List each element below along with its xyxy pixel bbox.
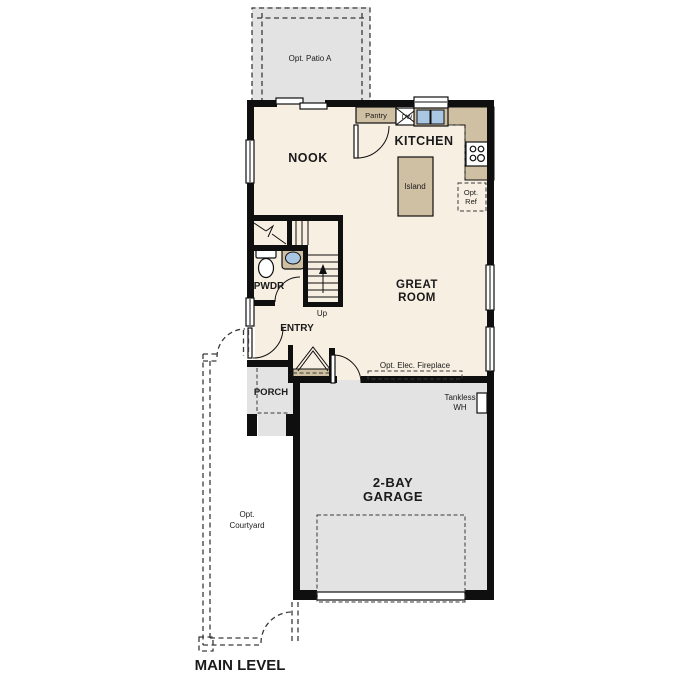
entry-label: ENTRY [280, 323, 314, 334]
sink-basin-left [417, 110, 430, 124]
courtyard-left-dashed [203, 354, 210, 645]
opt-ref-label-2: Ref [465, 197, 478, 206]
tankless-label-2: WH [453, 403, 467, 412]
courtyard-bottom-dashed [203, 638, 260, 645]
main-floor-area [250, 103, 490, 380]
floor-plan: Opt. Patio A NOOK KITCHEN Pantry DW Isla… [0, 0, 687, 687]
burner-icon [478, 155, 485, 162]
great-room-label-1: GREAT [396, 279, 438, 291]
wall-segment [303, 245, 308, 307]
courtyard-label-2: Courtyard [229, 521, 264, 530]
wall-segment [487, 100, 494, 265]
courtyard-post [199, 637, 213, 651]
toilet-bowl [259, 259, 274, 278]
opt-ref-label-1: Opt. [464, 188, 478, 197]
tankless-label-1: Tankless [444, 393, 475, 402]
wall-segment [247, 245, 308, 251]
courtyard-gate-swing-bottom [261, 612, 292, 643]
garage-label-1: 2-BAY [373, 475, 413, 490]
dw-label: DW [402, 114, 414, 121]
pwdr-sink-basin [286, 252, 301, 264]
courtyard-label-1: Opt. [239, 510, 254, 519]
floor-plan-svg: Opt. Patio A NOOK KITCHEN Pantry DW Isla… [0, 0, 687, 687]
burner-icon [470, 155, 476, 161]
wall-segment [487, 310, 494, 327]
range-stove [466, 142, 488, 166]
wall-segment [293, 383, 300, 600]
porch-step [258, 416, 290, 436]
overhead-garage-door [317, 592, 465, 600]
porch-label: PORCH [254, 387, 288, 398]
wall-segment [325, 100, 356, 107]
sliding-door-panel [300, 103, 327, 109]
main-level-title: MAIN LEVEL [195, 657, 286, 674]
wall-segment [293, 590, 317, 600]
wall-segment [247, 360, 293, 367]
kitchen-label: KITCHEN [394, 134, 453, 148]
pwdr-label: PWDR [254, 281, 285, 292]
fireplace-label: Opt. Elec. Fireplace [380, 361, 451, 370]
garage-door-leaf [331, 355, 335, 383]
tankless-water-heater [477, 393, 487, 413]
wall-segment [247, 215, 343, 221]
pantry-door-leaf [354, 125, 358, 158]
garage-label-2: GARAGE [363, 489, 423, 504]
pantry-label: Pantry [365, 111, 387, 120]
courtyard-right-dashed [292, 602, 298, 643]
wall-segment [356, 100, 414, 107]
sliding-door-panel [276, 98, 303, 104]
wall-segment [338, 215, 343, 307]
burner-icon [478, 146, 484, 152]
porch-post [286, 414, 293, 436]
courtyard-gate-swing-top [217, 329, 245, 357]
island-label: Island [404, 182, 425, 191]
wall-segment [487, 383, 494, 600]
sink-basin-right [431, 110, 444, 124]
wall-segment [247, 100, 254, 140]
porch-post [247, 414, 257, 436]
up-label: Up [317, 309, 328, 318]
burner-icon [470, 146, 476, 152]
patio-label: Opt. Patio A [289, 54, 332, 63]
wall-segment [303, 302, 343, 307]
wall-segment [465, 590, 494, 600]
great-room-label-2: ROOM [398, 292, 436, 304]
nook-label: NOOK [288, 151, 328, 165]
wall-segment [287, 215, 292, 251]
